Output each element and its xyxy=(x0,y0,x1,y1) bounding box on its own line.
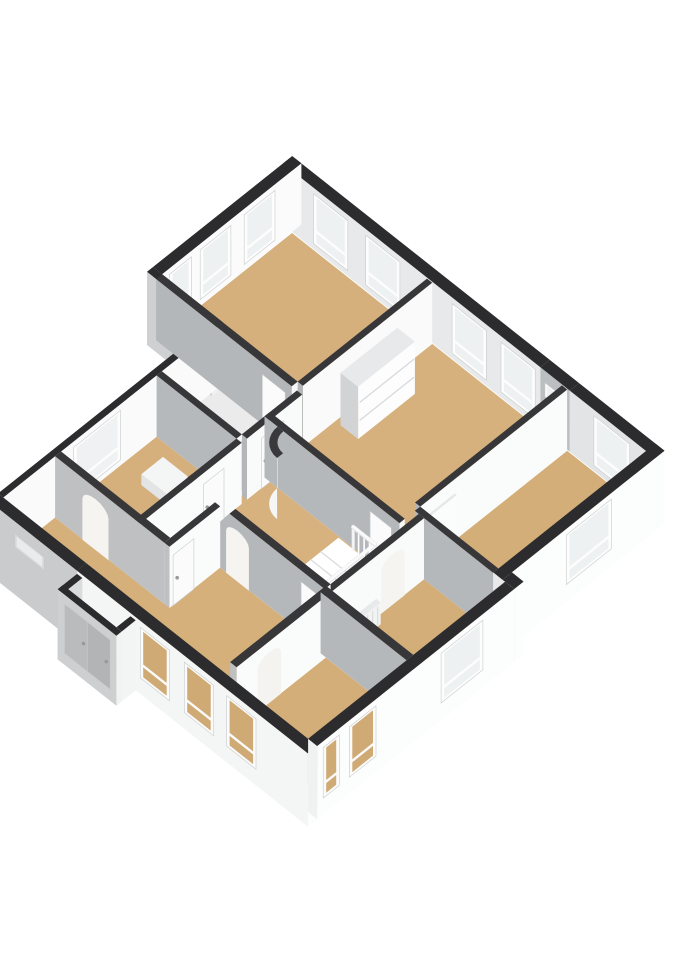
floorplan-canvas xyxy=(0,0,679,960)
entry-door-2-handle xyxy=(104,660,108,664)
wall-living-notch-face-sw xyxy=(164,543,169,608)
porch-wall-east-face-se xyxy=(122,620,136,701)
door-living-handle xyxy=(175,576,179,580)
wall-se-facade-lower-face-sw xyxy=(308,739,317,820)
window-south-corner-se-glass xyxy=(326,740,336,793)
wall-bathroom-east-face-sw xyxy=(242,434,247,499)
porch-wall-front-face-se xyxy=(116,632,121,706)
wall-se-step-face-se xyxy=(514,582,523,663)
floorplan-3d-render xyxy=(0,0,679,960)
entry-door-1-handle xyxy=(82,642,86,646)
